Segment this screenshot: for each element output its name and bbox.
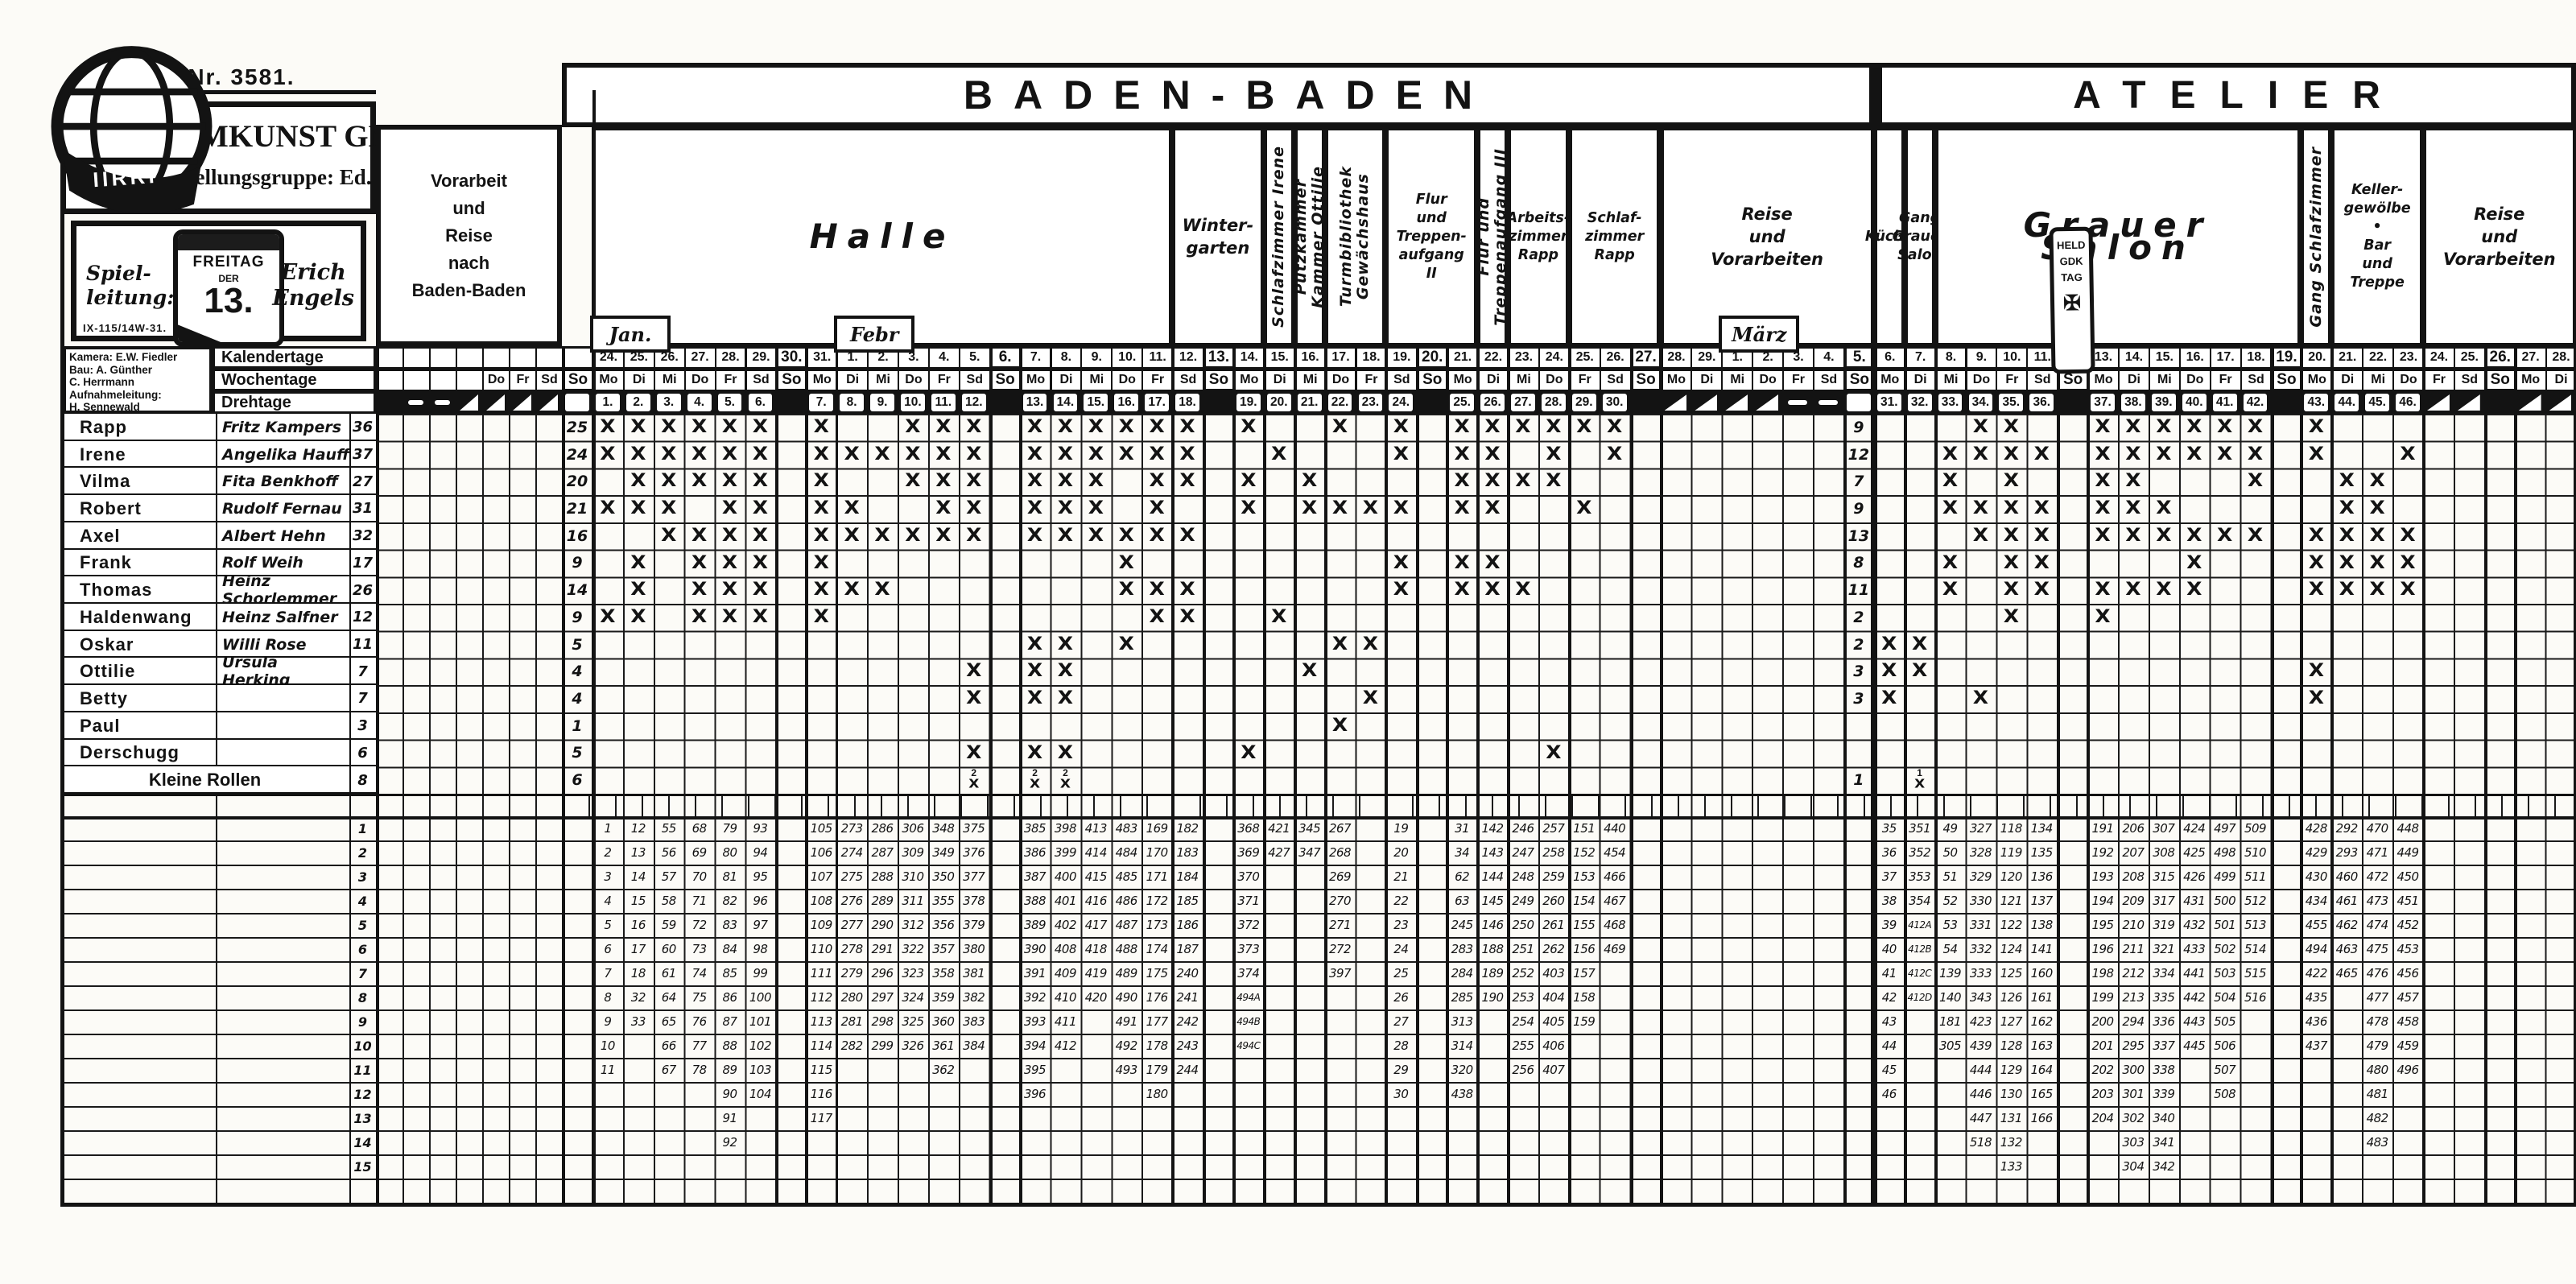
scene-number: 413 bbox=[1081, 816, 1110, 840]
kalendertag-24.: 24. bbox=[2423, 346, 2455, 369]
spacer-top-line bbox=[60, 794, 2576, 796]
wochentag-Mo: Mo bbox=[806, 369, 838, 391]
drehtag-cell: 30. bbox=[1603, 394, 1627, 411]
drehtag-cell: 42. bbox=[2244, 394, 2268, 411]
drehtag-empty-cell bbox=[565, 394, 589, 411]
scene-number: 162 bbox=[2027, 1009, 2056, 1034]
shooting-day-x-mark: X bbox=[1477, 496, 1508, 520]
scene-number: 146 bbox=[1478, 913, 1507, 937]
scene-number: 510 bbox=[2241, 840, 2270, 865]
kalendertag-15.: 15. bbox=[2149, 346, 2181, 369]
shooting-day-x-mark: X bbox=[2179, 415, 2210, 439]
scene-number: 475 bbox=[2363, 937, 2392, 961]
drehtag-cell: 11. bbox=[931, 394, 956, 411]
role-name: Vilma bbox=[60, 468, 216, 495]
scene-number: 307 bbox=[2149, 816, 2178, 840]
scene-number: 9 bbox=[593, 1009, 622, 1034]
shooting-day-x-mark: X bbox=[806, 551, 836, 575]
scene-number: 73 bbox=[685, 937, 714, 961]
kalendertag-11.: 11. bbox=[1141, 346, 1174, 369]
scene-number: 109 bbox=[807, 913, 836, 937]
drehtag-cell: 26. bbox=[1480, 394, 1505, 411]
scene-number: 10 bbox=[593, 1034, 622, 1058]
scene-number: 60 bbox=[654, 937, 683, 961]
shooting-day-x-mark: X bbox=[1141, 469, 1172, 493]
total-days: 36 bbox=[349, 414, 376, 441]
scene-number: 132 bbox=[1996, 1130, 2025, 1154]
scene-number: 505 bbox=[2211, 1009, 2240, 1034]
sunday-col-line bbox=[805, 346, 808, 1203]
wochentag-Di: Di bbox=[1477, 369, 1509, 391]
shooting-day-x-mark: X bbox=[2149, 415, 2179, 439]
scene-number: 160 bbox=[2027, 961, 2056, 985]
so-col-left-line bbox=[562, 346, 565, 1203]
shooting-day-x-mark: X bbox=[836, 523, 867, 547]
shooting-day-x-mark: X bbox=[1538, 469, 1569, 493]
shooting-day-x-mark: X bbox=[2026, 442, 2057, 466]
scene-number: 285 bbox=[1447, 985, 1476, 1009]
shooting-day-x-mark: X bbox=[806, 605, 836, 629]
scene-number: 334 bbox=[2149, 961, 2178, 985]
scene-number: 487 bbox=[1112, 913, 1141, 937]
scene-number: 122 bbox=[1996, 913, 2025, 937]
location-label: Halle bbox=[810, 225, 956, 248]
scene-number: 434 bbox=[2301, 889, 2330, 913]
scene-number: 381 bbox=[960, 961, 989, 985]
scene-number: 26 bbox=[1386, 985, 1415, 1009]
wochentag-So: So bbox=[2484, 369, 2516, 391]
scene-number: 140 bbox=[1936, 985, 1965, 1009]
shooting-day-x-mark: X bbox=[1874, 686, 1905, 710]
kalendertag-28.: 28. bbox=[715, 346, 747, 369]
scene-number: 100 bbox=[746, 985, 775, 1009]
shooting-day-x-mark: X bbox=[959, 442, 989, 466]
shooting-day-x-mark: X bbox=[715, 605, 745, 629]
production-code: IX-115/14W-31. bbox=[83, 322, 167, 334]
scene-number: 422 bbox=[2301, 961, 2330, 985]
scene-number: 180 bbox=[1142, 1082, 1171, 1106]
location-group-flur-und-treppen-aufgang-ii: FlurundTreppen-aufgangII bbox=[1385, 127, 1477, 346]
drehtag-cell: 32. bbox=[1908, 394, 1932, 411]
sunday-col-line bbox=[1019, 346, 1022, 1203]
shooting-day-x-mark: X bbox=[715, 523, 745, 547]
sunday-col-line bbox=[1630, 346, 1633, 1203]
drehtag-cell: 7. bbox=[809, 394, 833, 411]
scene-number: 245 bbox=[1447, 913, 1476, 937]
shooting-day-x-mark: X bbox=[1600, 415, 1630, 439]
location-label: Bar bbox=[2344, 237, 2411, 255]
drehtag-cell: 25. bbox=[1450, 394, 1474, 411]
wochentag-Mi: Mi bbox=[1935, 369, 1967, 391]
grid-left-bottom bbox=[60, 816, 376, 1203]
scene-number: 261 bbox=[1539, 913, 1568, 937]
wochentag-Mi: Mi bbox=[1294, 369, 1327, 391]
scene-number: 283 bbox=[1447, 937, 1476, 961]
shooting-day-x-mark: X bbox=[2210, 442, 2240, 466]
scene-number: 19 bbox=[1386, 816, 1415, 840]
scene-number: 202 bbox=[2088, 1058, 2117, 1082]
wochentag-cell bbox=[456, 369, 484, 391]
scene-number: 494A bbox=[1234, 985, 1263, 1009]
scene-number: 163 bbox=[2027, 1034, 2056, 1058]
scene-number: 482 bbox=[2363, 1106, 2392, 1130]
scene-number: 306 bbox=[898, 816, 927, 840]
shooting-day-x-mark: X bbox=[1172, 577, 1203, 601]
scene-number: 504 bbox=[2211, 985, 2240, 1009]
scene-number: 451 bbox=[2393, 889, 2422, 913]
kalendertag-25.: 25. bbox=[1569, 346, 1601, 369]
shooting-day-x-mark: X bbox=[2240, 415, 2271, 439]
drehtag-cell: 19. bbox=[1236, 394, 1261, 411]
scene-number: 247 bbox=[1509, 840, 1538, 865]
scene-number: 323 bbox=[898, 961, 927, 985]
shooting-day-x-mark: X bbox=[684, 442, 715, 466]
scene-number: 14 bbox=[624, 865, 653, 889]
scene-number: 511 bbox=[2241, 865, 2270, 889]
scene-number: 272 bbox=[1326, 937, 1355, 961]
scene-number: 151 bbox=[1570, 816, 1599, 840]
scene-number: 340 bbox=[2149, 1106, 2178, 1130]
location-label-vertical: Gang Schlafzimmer bbox=[2309, 147, 2324, 328]
shooting-day-x-mark: X bbox=[1233, 415, 1264, 439]
actor-name: Ursula Herking bbox=[216, 658, 349, 685]
shooting-day-x-mark: X bbox=[2179, 551, 2210, 575]
scene-number: 68 bbox=[685, 816, 714, 840]
wochentag-Mo: Mo bbox=[1447, 369, 1479, 391]
drehtag-cell: 14. bbox=[1054, 394, 1078, 411]
scene-number: 335 bbox=[2149, 985, 2178, 1009]
take-row-number: 1 bbox=[349, 816, 376, 840]
kalendertag-12.: 12. bbox=[1172, 346, 1204, 369]
shooting-day-x-mark: X bbox=[1966, 442, 1996, 466]
wochentag-cell: Fr bbox=[509, 369, 537, 391]
shooting-day-x-mark: X bbox=[2362, 469, 2392, 493]
shooting-day-x-mark: X bbox=[2087, 496, 2118, 520]
kalendertag-29.: 29. bbox=[745, 346, 778, 369]
shooting-day-x-mark: X bbox=[654, 496, 684, 520]
baden-baden-day-count: 14 bbox=[562, 576, 592, 604]
grid-date-body bbox=[592, 414, 2576, 794]
location-label-vertical: Putzkammer bbox=[1294, 179, 1309, 295]
scene-number: 311 bbox=[898, 889, 927, 913]
scene-number: 111 bbox=[807, 961, 836, 985]
scene-number: 343 bbox=[1967, 985, 1996, 1009]
scene-number: 115 bbox=[807, 1058, 836, 1082]
role-name: Frank bbox=[60, 550, 216, 577]
location-group-putzkammer-kammer-ottilie: PutzkammerKammer Ottilie bbox=[1294, 127, 1325, 346]
scene-number: 453 bbox=[2393, 937, 2422, 961]
scene-number: 101 bbox=[746, 1009, 775, 1034]
location-label: Treppe bbox=[2344, 274, 2411, 292]
scene-number: 378 bbox=[960, 889, 989, 913]
drehtag-cell: 4. bbox=[687, 394, 712, 411]
wochentag-Di: Di bbox=[2545, 369, 2576, 391]
vorarbeit-line: Vorarbeit bbox=[431, 167, 507, 195]
scene-number: 199 bbox=[2088, 985, 2117, 1009]
scene-number: 447 bbox=[1967, 1106, 1996, 1130]
wochentag-Di: Di bbox=[1051, 369, 1083, 391]
location-label-vertical: Kammer Ottilie bbox=[1311, 166, 1326, 308]
scene-number: 408 bbox=[1051, 937, 1080, 961]
drehtag-cell: 12. bbox=[962, 394, 986, 411]
scene-number: 175 bbox=[1142, 961, 1171, 985]
shooting-day-x-mark: X bbox=[2026, 523, 2057, 547]
drehtag-cell: 18. bbox=[1175, 394, 1199, 411]
scene-number: 379 bbox=[960, 913, 989, 937]
drehtag-cell: 5. bbox=[718, 394, 742, 411]
drehtag-cell: 8. bbox=[840, 394, 864, 411]
x-mark-small: X bbox=[1905, 778, 1935, 790]
total-days: 31 bbox=[349, 495, 376, 522]
take-row-number: 5 bbox=[349, 913, 376, 937]
scene-number: 28 bbox=[1386, 1034, 1415, 1058]
scene-number: 87 bbox=[716, 1009, 745, 1034]
scene-number: 489 bbox=[1112, 961, 1141, 985]
shooting-day-x-mark: X bbox=[1447, 496, 1477, 520]
scene-number: 440 bbox=[1600, 816, 1629, 840]
scene-number: 293 bbox=[2332, 840, 2361, 865]
drehtag-cell: 46. bbox=[2396, 394, 2420, 411]
table-left-border bbox=[60, 90, 64, 1203]
location-label: garten bbox=[1183, 237, 1254, 259]
shooting-day-x-mark: X bbox=[867, 577, 898, 601]
shooting-day-x-mark: X bbox=[2331, 496, 2362, 520]
total-days: 26 bbox=[349, 576, 376, 604]
wochentag-Mi: Mi bbox=[1080, 369, 1113, 391]
wochentag-Fr: Fr bbox=[715, 369, 747, 391]
scene-number: 361 bbox=[929, 1034, 958, 1058]
atelier-day-count: 11 bbox=[1843, 576, 1874, 604]
atelier-day-count: 9 bbox=[1843, 495, 1874, 522]
shooting-day-x-mark: X bbox=[1264, 605, 1294, 629]
scene-number: 428 bbox=[2301, 816, 2330, 840]
wochentag-Fr: Fr bbox=[2423, 369, 2455, 391]
scene-number: 277 bbox=[837, 913, 866, 937]
vorarbeit-line: und bbox=[452, 195, 485, 222]
scene-number: 145 bbox=[1478, 889, 1507, 913]
shooting-day-x-mark: X bbox=[2301, 577, 2331, 601]
shooting-day-x-mark: X bbox=[2026, 551, 2057, 575]
scene-number: 240 bbox=[1173, 961, 1202, 985]
scene-number: 273 bbox=[837, 816, 866, 840]
drehtag-cell: 15. bbox=[1084, 394, 1108, 411]
shooting-day-x-mark: X bbox=[2392, 523, 2423, 547]
scene-number: 404 bbox=[1539, 985, 1568, 1009]
wochentag-Do: Do bbox=[2179, 369, 2211, 391]
scene-number: 96 bbox=[746, 889, 775, 913]
kalendertag-10.: 10. bbox=[1111, 346, 1143, 369]
location-label: Vorarbeiten bbox=[1711, 248, 1823, 270]
wochentag-Mi: Mi bbox=[2362, 369, 2394, 391]
col-line bbox=[216, 441, 217, 469]
shooting-day-x-mark: X bbox=[715, 415, 745, 439]
scene-number: 7 bbox=[593, 961, 622, 985]
scene-number: 141 bbox=[2027, 937, 2056, 961]
scene-number: 190 bbox=[1478, 985, 1507, 1009]
wochentag-Do: Do bbox=[1752, 369, 1784, 391]
vorarbeit-line: Reise bbox=[445, 222, 493, 250]
shooting-day-x-mark: X bbox=[1111, 442, 1141, 466]
shooting-day-x-mark: X bbox=[1874, 659, 1905, 683]
scene-number: 394 bbox=[1021, 1034, 1050, 1058]
drehtag-cell: 13. bbox=[1023, 394, 1047, 411]
crew-line: Kamera: E.W. Fiedler bbox=[69, 351, 209, 364]
month-tab-jan.: Jan. bbox=[590, 316, 671, 353]
shooting-day-x-mark: X bbox=[1020, 741, 1051, 765]
col-line bbox=[216, 414, 217, 441]
wochentag-cell: Sd bbox=[535, 369, 563, 391]
actor-name: Rudolf Fernau bbox=[216, 495, 349, 522]
scene-number: 43 bbox=[1875, 1009, 1904, 1034]
scene-number: 40 bbox=[1875, 937, 1904, 961]
scene-number: 314 bbox=[1447, 1034, 1476, 1058]
scene-number: 292 bbox=[2332, 816, 2361, 840]
wochentag-Di: Di bbox=[1905, 369, 1937, 391]
scene-number: 84 bbox=[716, 937, 745, 961]
baden-baden-day-count: 24 bbox=[562, 441, 592, 469]
shooting-day-x-mark: X bbox=[2026, 577, 2057, 601]
scene-number: 483 bbox=[2363, 1130, 2392, 1154]
sunday-col-line bbox=[1232, 346, 1236, 1203]
shooting-day-x-mark: X bbox=[2362, 551, 2392, 575]
location-group-turmbibliothek-gewächshaus: TurmbibliothekGewächshaus bbox=[1325, 127, 1386, 346]
wochentag-Mo: Mo bbox=[2515, 369, 2547, 391]
drehtag-cell: 3. bbox=[657, 394, 681, 411]
shooting-day-x-mark: X bbox=[2331, 469, 2362, 493]
shooting-day-x-mark: X bbox=[2149, 577, 2179, 601]
x-mark-small: X bbox=[1051, 778, 1081, 790]
scene-number: 103 bbox=[746, 1058, 775, 1082]
scene-number: 386 bbox=[1021, 840, 1050, 865]
scene-number: 443 bbox=[2180, 1009, 2209, 1034]
wochentag-Mi: Mi bbox=[1508, 369, 1540, 391]
actor-name: Fritz Kampers bbox=[216, 414, 349, 441]
wochentag-So: So bbox=[2271, 369, 2303, 391]
shooting-day-x-mark: X bbox=[2362, 523, 2392, 547]
shooting-day-x-mark: X bbox=[1325, 496, 1356, 520]
scene-number: 466 bbox=[1600, 865, 1629, 889]
scene-number: 81 bbox=[716, 865, 745, 889]
shooting-day-x-mark: X bbox=[2392, 577, 2423, 601]
stamp-line3: 13. bbox=[178, 281, 279, 321]
kalendertag-18.: 18. bbox=[2240, 346, 2273, 369]
row-label-kalendertage: Kalendertage bbox=[213, 346, 376, 369]
shooting-day-count-mark: 2X bbox=[959, 766, 989, 794]
scene-number: 356 bbox=[929, 913, 958, 937]
scene-number: 357 bbox=[929, 937, 958, 961]
scene-number: 256 bbox=[1509, 1058, 1538, 1082]
role-name: Axel bbox=[60, 522, 216, 550]
shooting-day-x-mark: X bbox=[2301, 659, 2331, 683]
scene-number: 377 bbox=[960, 865, 989, 889]
shooting-day-x-mark: X bbox=[1477, 551, 1508, 575]
shooting-day-x-mark: X bbox=[1172, 523, 1203, 547]
shooting-day-x-mark: X bbox=[1538, 442, 1569, 466]
travel-day-dash bbox=[1788, 400, 1807, 405]
scene-number: 201 bbox=[2088, 1034, 2117, 1058]
atelier-day-count: 2 bbox=[1843, 604, 1874, 631]
atelier-day-count: 3 bbox=[1843, 658, 1874, 685]
scene-number: 246 bbox=[1509, 816, 1538, 840]
scene-number: 262 bbox=[1539, 937, 1568, 961]
scene-number: 8 bbox=[593, 985, 622, 1009]
scene-number: 27 bbox=[1386, 1009, 1415, 1034]
shooting-day-x-mark: X bbox=[1996, 415, 2026, 439]
scene-number: 402 bbox=[1051, 913, 1080, 937]
wochentag-Mi: Mi bbox=[867, 369, 899, 391]
role-name: Ottilie bbox=[60, 658, 216, 685]
total-days: 3 bbox=[349, 712, 376, 740]
wochentag-So: So bbox=[1203, 369, 1235, 391]
scene-number: 182 bbox=[1173, 816, 1202, 840]
take-row-number: 14 bbox=[349, 1130, 376, 1154]
drehtag-cell: 28. bbox=[1542, 394, 1566, 411]
shooting-day-x-mark: X bbox=[2301, 415, 2331, 439]
scene-number: 327 bbox=[1967, 816, 1996, 840]
scene-number: 476 bbox=[2363, 961, 2392, 985]
shooting-day-x-mark: X bbox=[684, 469, 715, 493]
scene-number: 296 bbox=[868, 961, 897, 985]
scene-number: 5 bbox=[593, 913, 622, 937]
scene-number: 29 bbox=[1386, 1058, 1415, 1082]
scene-number: 287 bbox=[868, 840, 897, 865]
scene-number: 446 bbox=[1967, 1082, 1996, 1106]
location-label: • bbox=[2344, 218, 2411, 237]
scene-number: 61 bbox=[654, 961, 683, 985]
scene-number: 39 bbox=[1875, 913, 1904, 937]
crew-line: H. Sennewald bbox=[69, 401, 209, 414]
scene-number: 203 bbox=[2088, 1082, 2117, 1106]
shooting-day-x-mark: X bbox=[2240, 442, 2271, 466]
shooting-day-x-mark: X bbox=[2118, 577, 2149, 601]
sunday-col-line bbox=[2271, 346, 2274, 1203]
scene-number: 360 bbox=[929, 1009, 958, 1034]
crew-box: Kamera: E.W. FiedlerBau: A. Günther C. H… bbox=[63, 346, 213, 414]
total-days: 37 bbox=[349, 441, 376, 469]
wochentag-Di: Di bbox=[836, 369, 869, 391]
scene-number: 308 bbox=[2149, 840, 2178, 865]
shooting-day-x-mark: X bbox=[2331, 551, 2362, 575]
scene-number: 83 bbox=[716, 913, 745, 937]
scene-number: 390 bbox=[1021, 937, 1050, 961]
director-line: Engels bbox=[272, 286, 354, 312]
scene-number: 370 bbox=[1234, 865, 1263, 889]
wochentag-Fr: Fr bbox=[2210, 369, 2242, 391]
col-line bbox=[216, 794, 217, 816]
direction-box: Spiel-leitung: FREITAG DER 13. ErichEnge… bbox=[71, 221, 366, 341]
actor-name bbox=[216, 712, 349, 740]
shooting-day-x-mark: X bbox=[1996, 605, 2026, 629]
scene-number: 414 bbox=[1081, 840, 1110, 865]
shooting-day-x-mark: X bbox=[959, 496, 989, 520]
location-group-keller-gewölbe-bar-und-treppe: Keller-gewölbe•BarundTreppe bbox=[2331, 127, 2423, 346]
scene-number: 280 bbox=[837, 985, 866, 1009]
scene-number: 20 bbox=[1386, 840, 1415, 865]
scene-number: 211 bbox=[2119, 937, 2148, 961]
scene-number: 173 bbox=[1142, 913, 1171, 937]
shooting-day-x-mark: X bbox=[1325, 713, 1356, 737]
location-label: zimmer bbox=[1585, 228, 1644, 246]
scene-number: 374 bbox=[1234, 961, 1263, 985]
shooting-day-x-mark: X bbox=[928, 523, 959, 547]
baden-baden-day-count: 9 bbox=[562, 604, 592, 631]
shooting-day-x-mark: X bbox=[928, 442, 959, 466]
scene-number: 515 bbox=[2241, 961, 2270, 985]
scene-number: 55 bbox=[654, 816, 683, 840]
shooting-day-x-mark: X bbox=[1233, 496, 1264, 520]
scene-number: 250 bbox=[1509, 913, 1538, 937]
scene-number: 421 bbox=[1265, 816, 1294, 840]
